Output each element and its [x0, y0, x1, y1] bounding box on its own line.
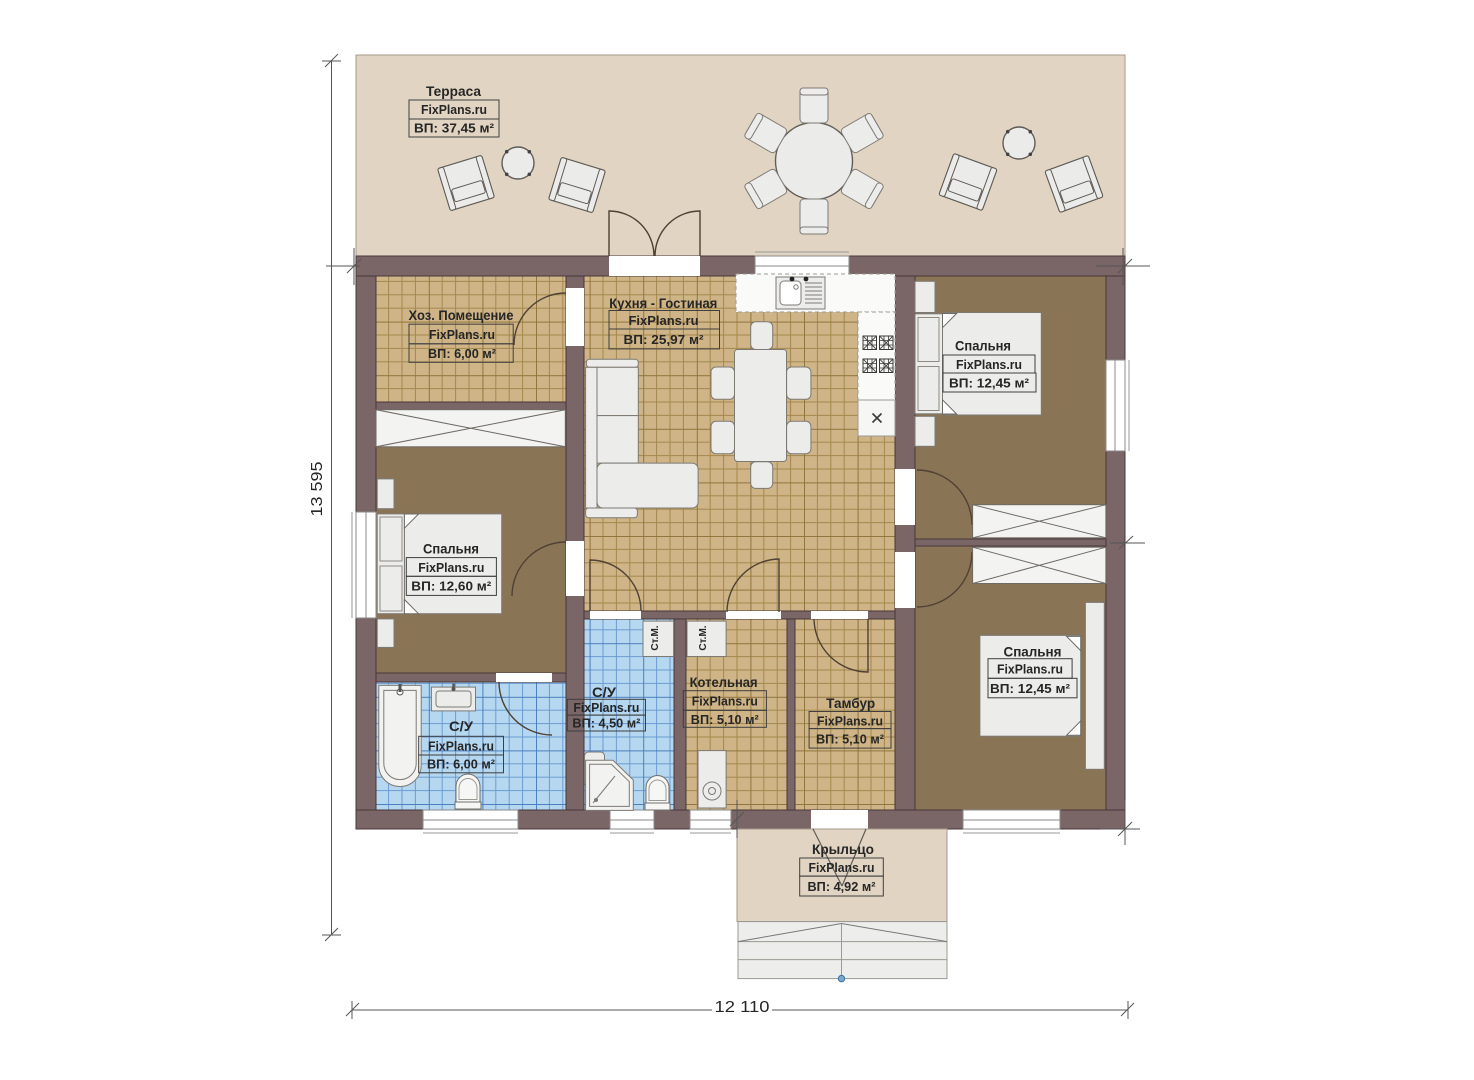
svg-text:Котельная: Котельная: [690, 674, 758, 690]
svg-text:FixPlans.ru: FixPlans.ru: [809, 860, 875, 875]
svg-text:Крыльцо: Крыльцо: [812, 841, 874, 857]
svg-text:FixPlans.ru: FixPlans.ru: [956, 357, 1022, 372]
svg-text:Спальня: Спальня: [423, 541, 479, 557]
svg-text:FixPlans.ru: FixPlans.ru: [428, 738, 494, 753]
svg-text:Терраса: Терраса: [426, 83, 481, 99]
svg-text:FixPlans.ru: FixPlans.ru: [418, 560, 484, 575]
svg-text:12 110: 12 110: [715, 999, 770, 1016]
svg-text:Тамбур: Тамбур: [826, 695, 875, 711]
svg-text:ВП: 25,97 м²: ВП: 25,97 м²: [624, 332, 705, 347]
svg-text:С/У: С/У: [592, 684, 616, 700]
svg-text:ВП: 6,00 м²: ВП: 6,00 м²: [427, 757, 496, 772]
svg-text:FixPlans.ru: FixPlans.ru: [997, 661, 1063, 676]
svg-text:ВП: 12,45 м²: ВП: 12,45 м²: [990, 681, 1071, 696]
svg-text:ВП: 5,10 м²: ВП: 5,10 м²: [816, 731, 885, 746]
svg-text:FixPlans.ru: FixPlans.ru: [817, 713, 883, 728]
svg-text:Хоз. Помещение: Хоз. Помещение: [409, 307, 514, 323]
svg-text:FixPlans.ru: FixPlans.ru: [629, 313, 699, 328]
svg-text:ВП: 6,00 м²: ВП: 6,00 м²: [428, 346, 497, 361]
svg-text:ВП: 12,60 м²: ВП: 12,60 м²: [411, 579, 492, 594]
svg-text:FixPlans.ru: FixPlans.ru: [692, 693, 758, 708]
svg-text:ВП: 4,92 м²: ВП: 4,92 м²: [808, 879, 877, 894]
svg-text:Ст.М.: Ст.М.: [698, 625, 709, 650]
svg-text:ВП: 37,45 м²: ВП: 37,45 м²: [414, 121, 495, 136]
svg-text:С/У: С/У: [449, 718, 473, 734]
svg-text:FixPlans.ru: FixPlans.ru: [573, 700, 639, 715]
svg-text:Ст.М.: Ст.М.: [650, 625, 661, 650]
svg-text:ВП: 12,45 м²: ВП: 12,45 м²: [949, 375, 1030, 390]
svg-text:ВП: 4,50 м²: ВП: 4,50 м²: [572, 716, 641, 731]
svg-text:Спальня: Спальня: [1004, 644, 1062, 660]
svg-text:ВП: 5,10 м²: ВП: 5,10 м²: [691, 712, 760, 727]
svg-text:13 595: 13 595: [309, 461, 326, 516]
svg-text:FixPlans.ru: FixPlans.ru: [429, 327, 495, 342]
svg-text:Кухня - Гостиная: Кухня - Гостиная: [609, 295, 717, 311]
svg-text:FixPlans.ru: FixPlans.ru: [421, 102, 487, 117]
svg-text:Спальня: Спальня: [955, 338, 1011, 354]
